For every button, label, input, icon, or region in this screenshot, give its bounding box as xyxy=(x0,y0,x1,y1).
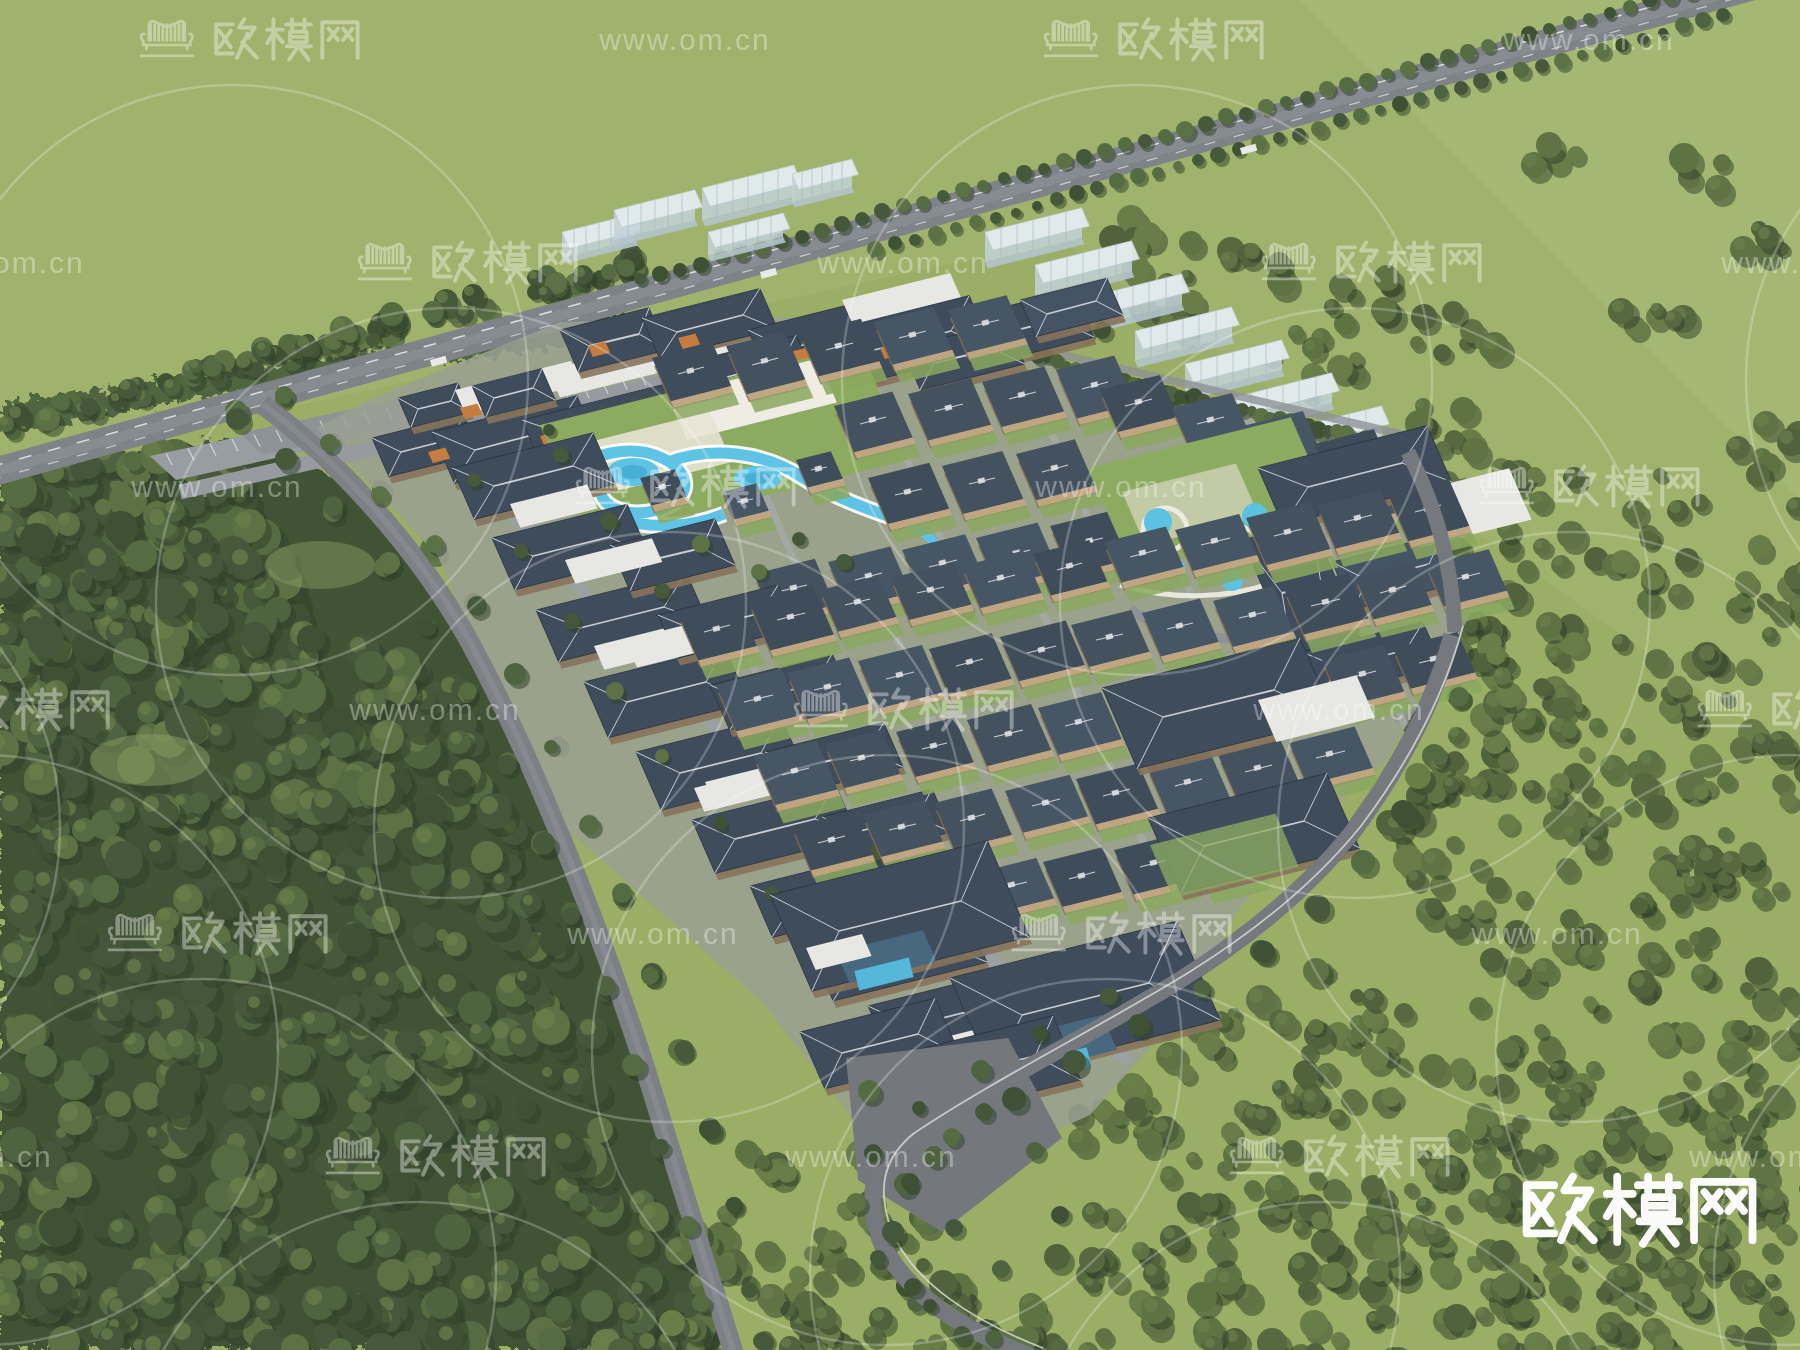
svg-text:www.om.cn: www.om.cn xyxy=(1502,23,1674,56)
svg-text:www.om.cn: www.om.cn xyxy=(598,23,770,56)
svg-text:www.om.cn: www.om.cn xyxy=(0,1140,53,1173)
svg-text:www.om.cn: www.om.cn xyxy=(348,693,520,726)
svg-text:www.om.cn: www.om.cn xyxy=(1252,693,1424,726)
svg-text:www.om.cn: www.om.cn xyxy=(0,246,85,279)
svg-text:www.om.cn: www.om.cn xyxy=(816,246,988,279)
svg-text:www.om.cn: www.om.cn xyxy=(1034,470,1206,503)
svg-text:www.om.cn: www.om.cn xyxy=(1470,917,1642,950)
svg-text:www.om.cn: www.om.cn xyxy=(784,1140,956,1173)
svg-text:www.om.cn: www.om.cn xyxy=(566,917,738,950)
svg-text:www.om.cn: www.om.cn xyxy=(130,470,302,503)
svg-text:www.om.cn: www.om.cn xyxy=(1720,246,1800,279)
